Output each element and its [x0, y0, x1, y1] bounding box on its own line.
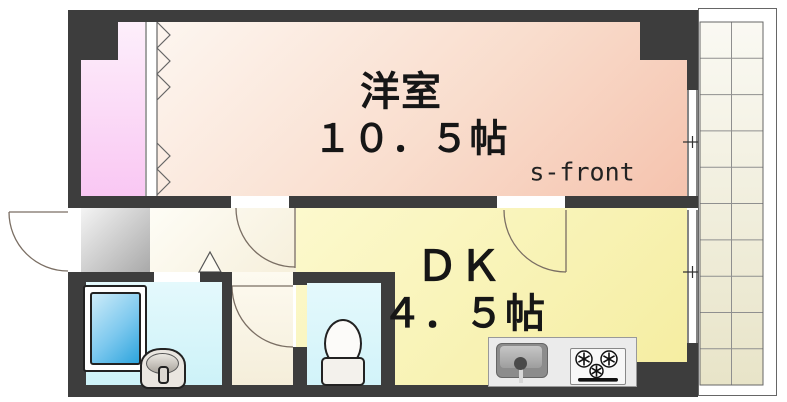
wall — [293, 272, 307, 285]
sliding-window-icon — [683, 90, 698, 343]
western-room-size: １０．５帖 — [313, 108, 508, 163]
wall — [86, 272, 154, 282]
stove-burners — [571, 349, 625, 384]
toilet-tank — [321, 357, 365, 386]
wall — [635, 362, 698, 397]
wall — [640, 10, 698, 60]
wall — [293, 347, 307, 397]
wall — [68, 10, 698, 22]
folding-door-icon — [199, 252, 221, 272]
accordion-door-icon — [146, 22, 170, 196]
wall — [687, 60, 698, 90]
kitchen-faucet — [519, 368, 523, 383]
kitchen-faucet-head — [514, 357, 527, 370]
wall — [222, 272, 232, 397]
gas-stove-icon — [570, 348, 626, 385]
wall — [68, 10, 81, 208]
floor-plan: 洋室 １０．５帖 s-front ＤＫ ４．５帖 — [0, 0, 787, 402]
wall — [293, 272, 395, 283]
dk-room-size: ４．５帖 — [382, 281, 546, 339]
wash-basin-tap — [158, 366, 169, 384]
wall — [565, 196, 698, 208]
balcony-grid-lines — [700, 22, 763, 385]
front-annotation: s-front — [529, 158, 634, 187]
bathtub-icon — [90, 292, 141, 365]
wall — [68, 196, 231, 208]
wall — [289, 196, 497, 208]
